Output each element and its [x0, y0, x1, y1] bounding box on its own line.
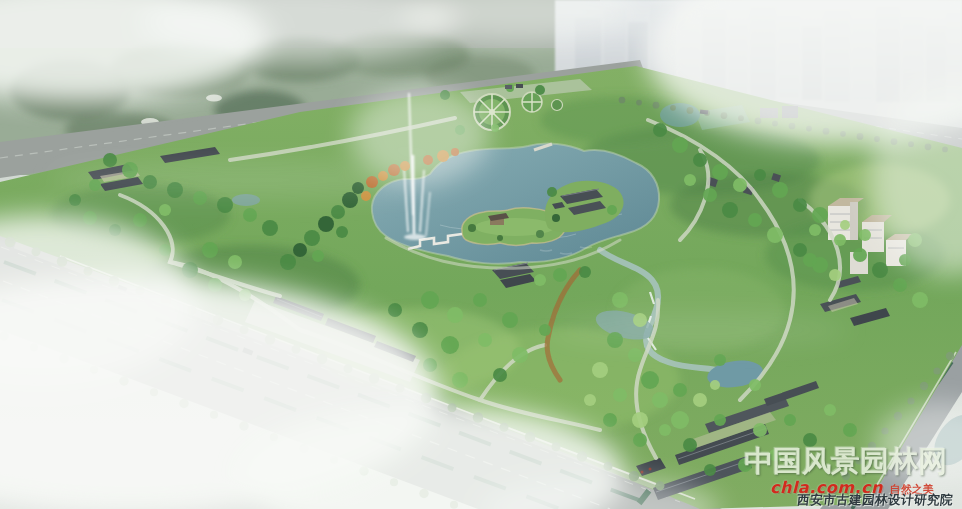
parked-car — [516, 84, 523, 88]
aerial-scene — [0, 0, 962, 509]
park-masterplan-rendering: 中国风景园林网 chla.com.cn 自然之美 西安市古建园林设计研究院 — [0, 0, 962, 509]
parked-car — [505, 85, 512, 89]
